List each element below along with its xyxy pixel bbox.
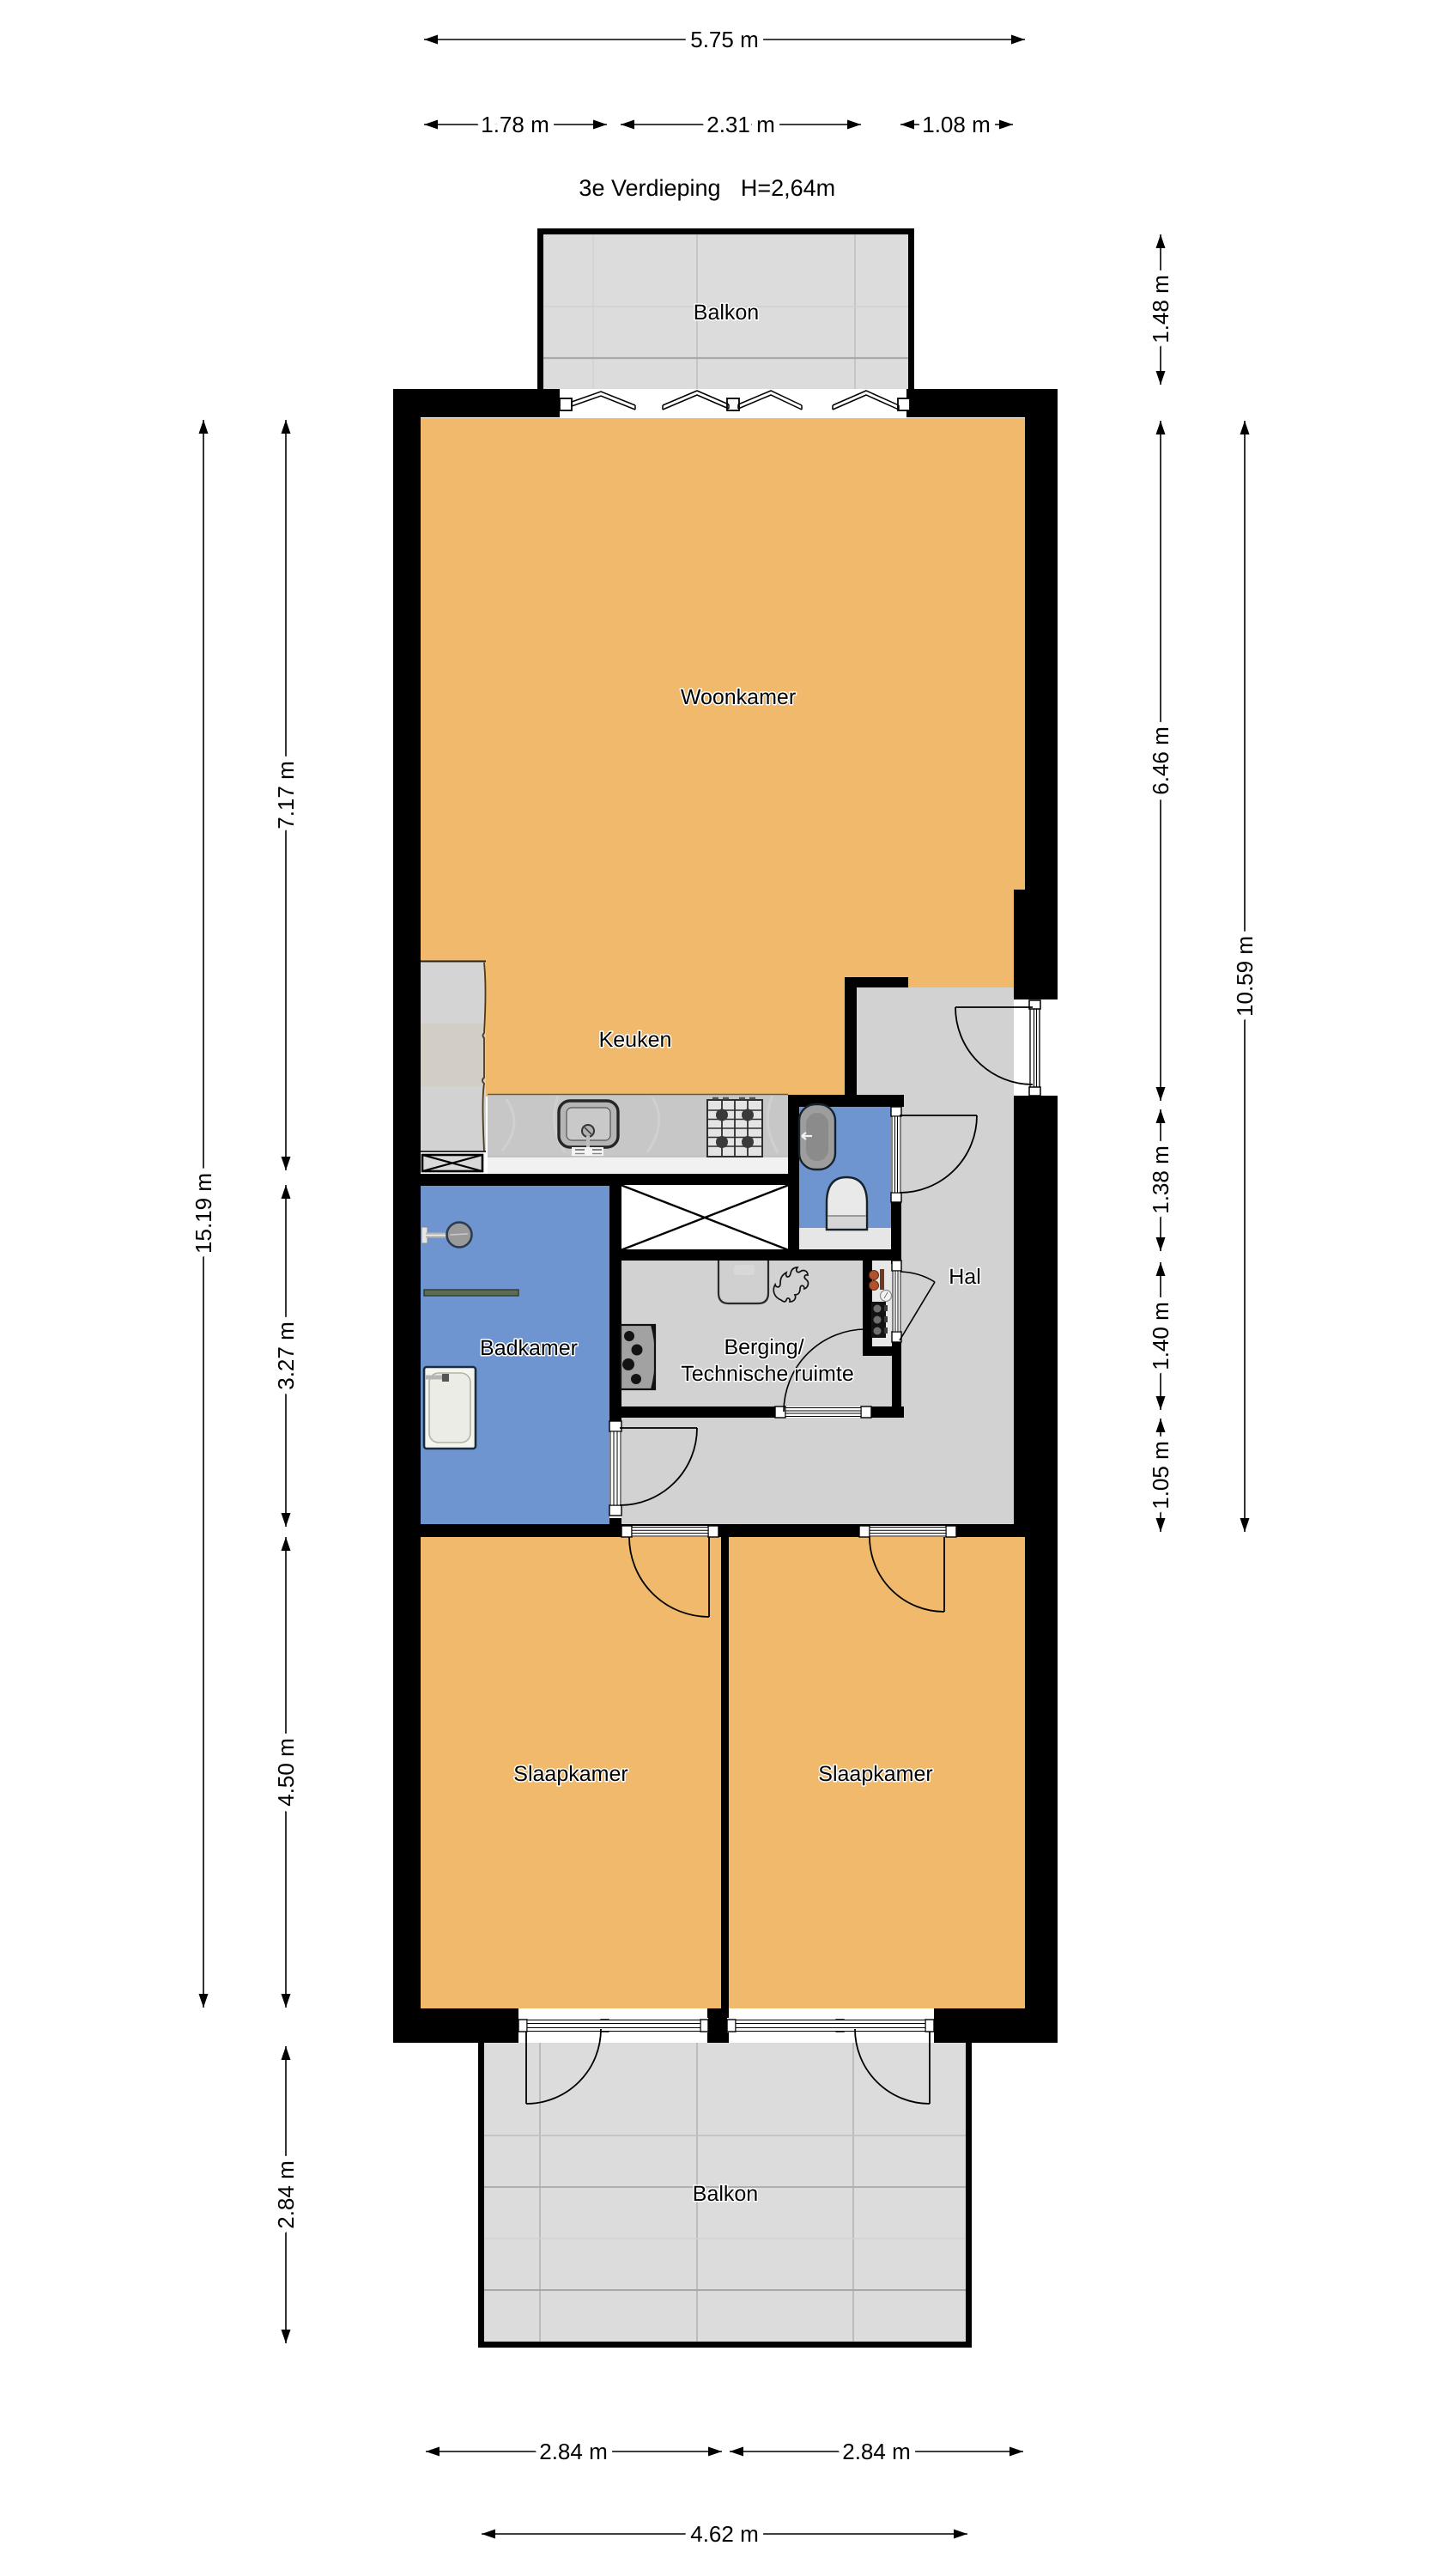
svg-text:6.46 m: 6.46 m <box>1148 726 1173 795</box>
svg-text:Slaapkamer: Slaapkamer <box>513 1762 627 1786</box>
svg-text:Balkon: Balkon <box>694 301 759 325</box>
svg-text:Technische ruimte: Technische ruimte <box>681 1362 853 1386</box>
svg-text:1.48 m: 1.48 m <box>1148 275 1173 343</box>
svg-text:1.40 m: 1.40 m <box>1148 1302 1173 1370</box>
svg-text:4.62 m: 4.62 m <box>690 2521 759 2547</box>
svg-text:2.84 m: 2.84 m <box>273 2160 299 2229</box>
svg-text:5.75 m: 5.75 m <box>690 27 759 52</box>
svg-text:3e Verdieping: 3e Verdieping <box>579 175 720 201</box>
svg-text:1.78 m: 1.78 m <box>481 112 549 137</box>
svg-text:Woonkamer: Woonkamer <box>681 685 796 709</box>
svg-text:15.19 m: 15.19 m <box>191 1173 216 1254</box>
svg-text:1.08 m: 1.08 m <box>922 112 991 137</box>
svg-text:Badkamer: Badkamer <box>480 1336 578 1360</box>
svg-text:Slaapkamer: Slaapkamer <box>818 1762 932 1786</box>
svg-text:Berging/: Berging/ <box>724 1335 803 1359</box>
svg-text:Hal: Hal <box>949 1265 981 1289</box>
svg-text:H=2,64m: H=2,64m <box>741 175 835 201</box>
svg-text:7.17 m: 7.17 m <box>273 761 299 829</box>
svg-text:Keuken: Keuken <box>599 1028 672 1052</box>
svg-text:4.50 m: 4.50 m <box>273 1738 299 1807</box>
svg-text:2.84 m: 2.84 m <box>842 2439 911 2464</box>
svg-text:2.31 m: 2.31 m <box>706 112 775 137</box>
svg-text:1.05 m: 1.05 m <box>1148 1441 1173 1510</box>
svg-text:2.84 m: 2.84 m <box>539 2439 608 2464</box>
svg-text:3.27 m: 3.27 m <box>273 1321 299 1390</box>
svg-text:10.59 m: 10.59 m <box>1232 936 1258 1017</box>
svg-text:Balkon: Balkon <box>693 2182 758 2206</box>
svg-text:1.38 m: 1.38 m <box>1148 1145 1173 1214</box>
